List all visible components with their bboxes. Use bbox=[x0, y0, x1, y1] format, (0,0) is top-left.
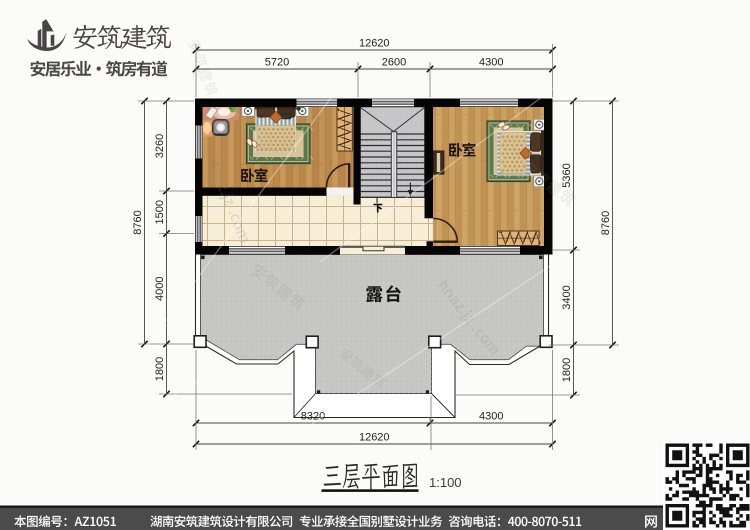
svg-text:3400: 3400 bbox=[561, 285, 573, 309]
svg-text:1800: 1800 bbox=[154, 357, 166, 381]
svg-text:8320: 8320 bbox=[301, 411, 325, 423]
svg-text:5720: 5720 bbox=[265, 57, 289, 69]
svg-text:1:100: 1:100 bbox=[429, 475, 462, 490]
svg-text:8760: 8760 bbox=[132, 210, 144, 234]
svg-text:5360: 5360 bbox=[561, 163, 573, 187]
svg-text:4300: 4300 bbox=[479, 57, 503, 69]
svg-text:1800: 1800 bbox=[561, 358, 573, 382]
svg-text:1500: 1500 bbox=[154, 200, 166, 224]
svg-text:8760: 8760 bbox=[600, 211, 612, 235]
svg-text:12620: 12620 bbox=[359, 432, 390, 444]
svg-text:4000: 4000 bbox=[154, 277, 166, 301]
svg-text:4300: 4300 bbox=[479, 411, 503, 423]
svg-text:12620: 12620 bbox=[359, 38, 390, 50]
svg-text:2600: 2600 bbox=[382, 57, 406, 69]
svg-text:3260: 3260 bbox=[154, 134, 166, 158]
